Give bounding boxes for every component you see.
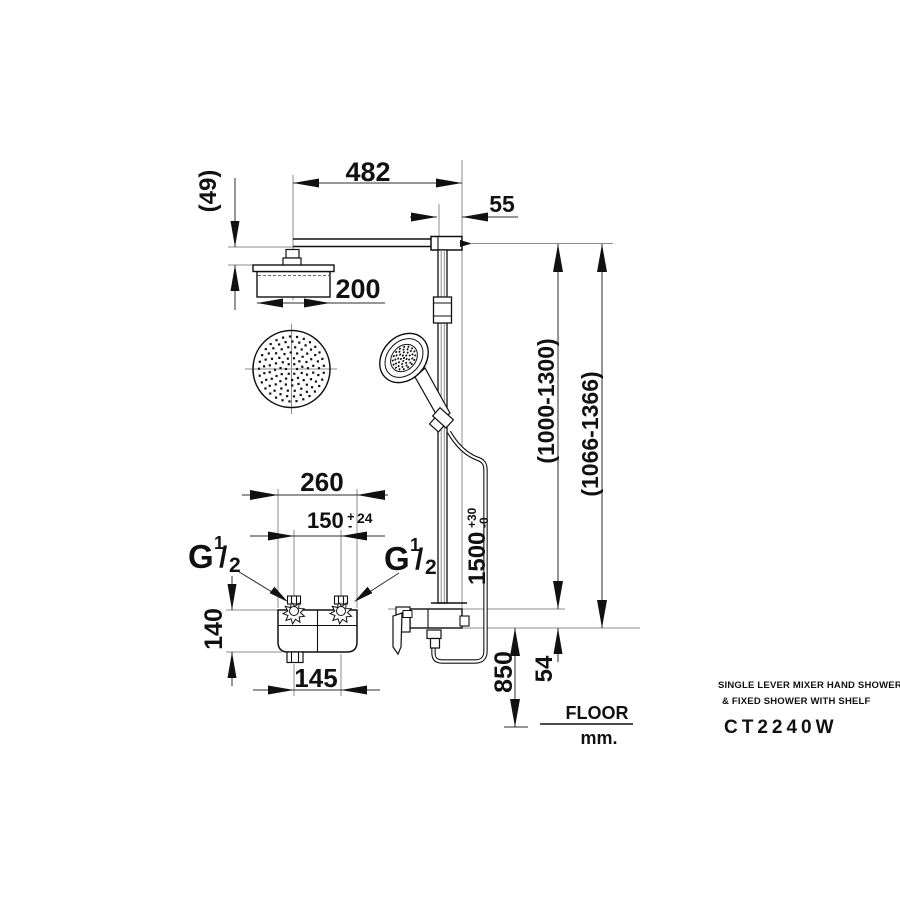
outlet-nut (287, 652, 303, 663)
dim-body-height: 140 (200, 608, 228, 650)
dim-hose-height: 1500 (464, 532, 491, 585)
thread-g: G (384, 540, 410, 577)
dim-shelf-width: 260 (300, 467, 343, 497)
thread-den: 2 (229, 554, 241, 577)
dim-hose-height-group: 1500 +30 -0 (464, 507, 491, 585)
dim-inlet-tol-minus: - (348, 518, 352, 533)
thread-den: 2 (425, 556, 437, 579)
floor-label: FLOOR (566, 703, 629, 723)
thread-slash: / (415, 543, 424, 576)
dim-rail-range: (1000-1300) (533, 338, 559, 463)
dim-outlet-span: 145 (294, 663, 337, 693)
dim-mixer-height: 850 (490, 651, 518, 693)
dim-rail-offset: 55 (489, 191, 515, 217)
dim-arm-reach: 482 (345, 157, 390, 187)
mixer-lever-handle (393, 613, 402, 654)
dim-hose-tol-minus: -0 (477, 517, 491, 528)
rail-slider-bracket (434, 297, 452, 323)
dim-overall-range: (1066-1366) (577, 371, 603, 496)
inlet-right (335, 596, 348, 604)
thread-g: G (188, 538, 214, 575)
product-model: CT2240W (724, 717, 838, 738)
product-title-line1: SINGLE LEVER MIXER HAND SHOWER (718, 680, 900, 691)
dim-shelf-gap: 54 (531, 655, 558, 682)
product-title-line2: & FIXED SHOWER WITH SHELF (722, 696, 871, 707)
units-label: mm. (580, 728, 617, 748)
dim-head-size: 200 (335, 274, 380, 304)
dim-head-drop: (49) (195, 170, 222, 213)
inlet-left (288, 596, 301, 604)
dim-inlet-tol: 24 (357, 510, 373, 526)
dim-inlet-spacing: 150 (307, 508, 344, 533)
thread-slash: / (219, 541, 228, 574)
shower-installation-diagram: 482 55 (49) 200 260 150 + - 24 G 1 / 2 G… (0, 0, 900, 900)
hose-outlet (427, 630, 441, 639)
background (0, 0, 900, 900)
